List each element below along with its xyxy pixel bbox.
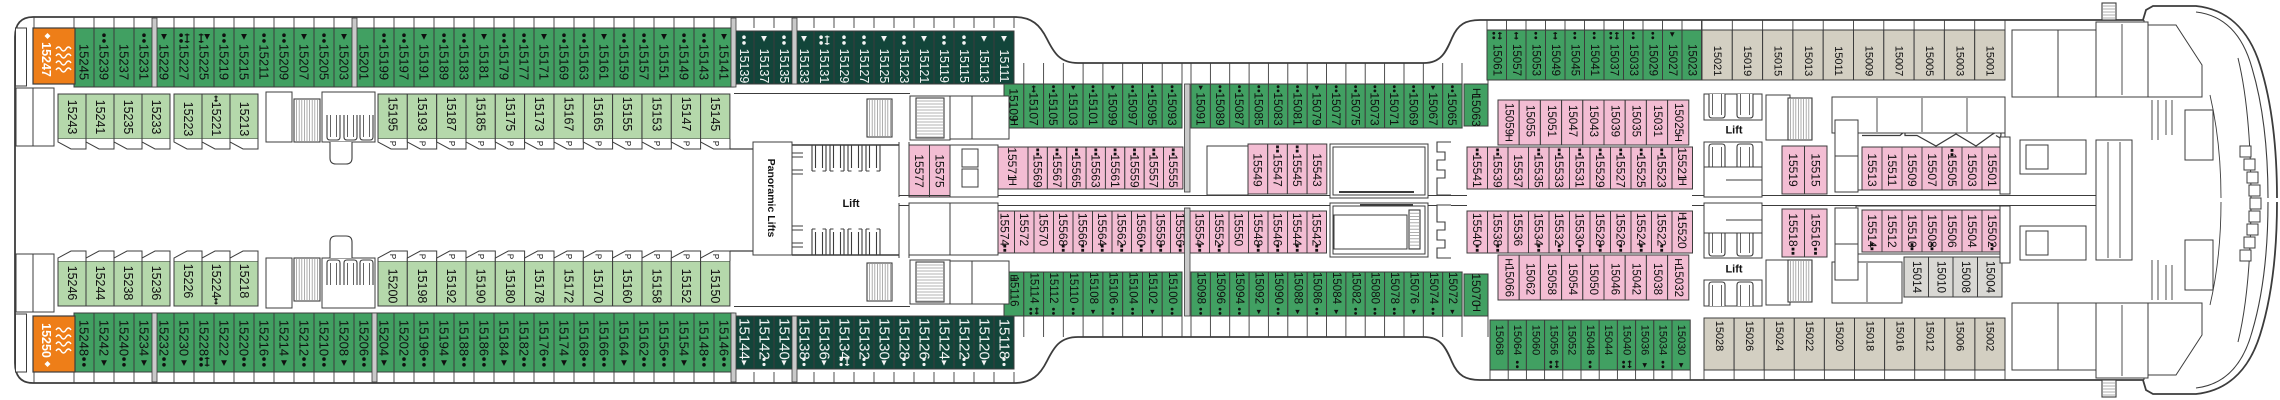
svg-text:15087: 15087 bbox=[1232, 92, 1246, 126]
svg-text:15197: 15197 bbox=[396, 44, 411, 80]
svg-text:15512: 15512 bbox=[1885, 214, 1899, 248]
svg-text:15502: 15502 bbox=[1985, 214, 1999, 248]
svg-text:15036: 15036 bbox=[1639, 325, 1651, 356]
svg-text:15102: 15102 bbox=[1146, 272, 1158, 304]
svg-text:15171: 15171 bbox=[536, 44, 551, 80]
svg-text:15507: 15507 bbox=[1925, 153, 1939, 187]
svg-text:15067: 15067 bbox=[1426, 92, 1440, 126]
svg-text:15047: 15047 bbox=[1566, 105, 1578, 137]
svg-text:15228: 15228 bbox=[196, 320, 211, 356]
svg-text:15135: 15135 bbox=[777, 49, 791, 84]
svg-text:15546: 15546 bbox=[1271, 213, 1285, 247]
svg-text:15111: 15111 bbox=[997, 50, 1011, 83]
svg-text:15094: 15094 bbox=[1233, 272, 1245, 305]
svg-text:15093: 15093 bbox=[1165, 92, 1179, 126]
svg-text:15088: 15088 bbox=[1291, 272, 1303, 304]
svg-text:15572: 15572 bbox=[1017, 213, 1031, 247]
svg-text:15084: 15084 bbox=[1330, 272, 1342, 305]
svg-text:15223: 15223 bbox=[181, 102, 195, 137]
svg-text:15201: 15201 bbox=[356, 44, 371, 80]
svg-text:15163: 15163 bbox=[576, 44, 591, 80]
svg-text:Panoramic Lifts: Panoramic Lifts bbox=[765, 159, 777, 238]
svg-text:15115: 15115 bbox=[957, 49, 971, 83]
svg-text:15009: 15009 bbox=[1862, 46, 1874, 77]
svg-text:15192: 15192 bbox=[444, 269, 458, 304]
svg-text:15245: 15245 bbox=[76, 44, 91, 80]
svg-text:15193: 15193 bbox=[415, 97, 429, 132]
svg-text:15104: 15104 bbox=[1126, 272, 1138, 305]
svg-text:15003: 15003 bbox=[1953, 46, 1965, 77]
svg-text:15505: 15505 bbox=[1945, 153, 1959, 187]
svg-text:15194: 15194 bbox=[436, 320, 451, 356]
svg-text:15059: 15059 bbox=[1502, 103, 1514, 135]
svg-text:15175: 15175 bbox=[503, 97, 517, 132]
svg-text:15105: 15105 bbox=[1046, 92, 1060, 126]
svg-text:15514: 15514 bbox=[1865, 214, 1879, 248]
svg-text:15524: 15524 bbox=[1634, 213, 1648, 247]
svg-text:H: H bbox=[1502, 258, 1514, 266]
svg-text:15008: 15008 bbox=[1959, 261, 1971, 293]
svg-text:15096: 15096 bbox=[1214, 272, 1226, 304]
svg-text:15240: 15240 bbox=[116, 320, 131, 356]
svg-text:15134: 15134 bbox=[835, 318, 852, 360]
svg-text:15563: 15563 bbox=[1089, 154, 1103, 188]
svg-text:15180: 15180 bbox=[503, 269, 517, 304]
svg-text:15153: 15153 bbox=[649, 97, 663, 132]
svg-text:P: P bbox=[594, 141, 603, 146]
svg-text:15075: 15075 bbox=[1348, 92, 1362, 126]
svg-text:15545: 15545 bbox=[1290, 153, 1304, 187]
svg-text:15034: 15034 bbox=[1657, 325, 1669, 356]
svg-text:15558: 15558 bbox=[1154, 213, 1168, 247]
svg-text:15566: 15566 bbox=[1076, 213, 1090, 247]
svg-text:15552: 15552 bbox=[1212, 213, 1226, 247]
svg-text:15124: 15124 bbox=[935, 318, 952, 360]
svg-text:15053: 15053 bbox=[1530, 44, 1542, 76]
svg-text:15085: 15085 bbox=[1252, 92, 1266, 126]
svg-text:P: P bbox=[652, 141, 661, 146]
svg-text:15073: 15073 bbox=[1368, 92, 1382, 126]
svg-text:15022: 15022 bbox=[1803, 321, 1815, 352]
svg-text:15542: 15542 bbox=[1310, 213, 1324, 247]
svg-text:15531: 15531 bbox=[1573, 154, 1587, 188]
svg-text:15129: 15129 bbox=[837, 49, 851, 84]
svg-text:15024: 15024 bbox=[1773, 321, 1785, 352]
svg-text:15206: 15206 bbox=[356, 320, 371, 356]
svg-text:15001: 15001 bbox=[1984, 46, 1996, 77]
svg-text:15188: 15188 bbox=[456, 320, 471, 356]
svg-text:15150: 15150 bbox=[708, 269, 722, 304]
svg-text:15049: 15049 bbox=[1549, 44, 1561, 76]
svg-text:15219: 15219 bbox=[216, 44, 231, 80]
svg-text:15567: 15567 bbox=[1050, 154, 1064, 188]
svg-text:Lift: Lift bbox=[1725, 264, 1742, 276]
svg-text:15016: 15016 bbox=[1893, 321, 1905, 352]
svg-text:15100: 15100 bbox=[1166, 272, 1178, 304]
svg-text:15165: 15165 bbox=[591, 97, 605, 132]
svg-text:15141: 15141 bbox=[716, 44, 731, 80]
svg-text:15050: 15050 bbox=[1587, 263, 1599, 295]
svg-text:15012: 15012 bbox=[1924, 321, 1936, 352]
svg-text:P: P bbox=[506, 254, 515, 259]
svg-text:15031: 15031 bbox=[1651, 105, 1663, 137]
svg-text:15097: 15097 bbox=[1125, 92, 1139, 126]
svg-text:P: P bbox=[388, 254, 397, 259]
svg-text:15120: 15120 bbox=[975, 318, 992, 360]
svg-text:15510: 15510 bbox=[1905, 214, 1919, 248]
svg-text:15234: 15234 bbox=[136, 320, 151, 356]
svg-text:15132: 15132 bbox=[855, 318, 872, 360]
svg-text:15018: 15018 bbox=[1863, 321, 1875, 352]
svg-text:15169: 15169 bbox=[556, 44, 571, 80]
svg-text:15231: 15231 bbox=[136, 44, 151, 80]
svg-text:15167: 15167 bbox=[561, 97, 575, 132]
svg-text:P: P bbox=[564, 254, 573, 259]
svg-text:15044: 15044 bbox=[1602, 325, 1614, 356]
svg-text:15196: 15196 bbox=[416, 320, 431, 356]
svg-text:15516: 15516 bbox=[1809, 213, 1823, 247]
svg-text:15209: 15209 bbox=[276, 44, 291, 80]
svg-text:15564: 15564 bbox=[1095, 213, 1109, 247]
svg-text:P: P bbox=[535, 254, 544, 259]
svg-text:15157: 15157 bbox=[636, 44, 651, 80]
svg-text:15086: 15086 bbox=[1311, 272, 1323, 304]
svg-text:15168: 15168 bbox=[576, 320, 591, 356]
svg-text:15160: 15160 bbox=[620, 269, 634, 304]
svg-text:15051: 15051 bbox=[1545, 105, 1557, 137]
svg-text:15521: 15521 bbox=[1675, 147, 1689, 181]
svg-text:15006: 15006 bbox=[1954, 321, 1966, 352]
svg-text:P: P bbox=[594, 254, 603, 259]
svg-text:15181: 15181 bbox=[476, 44, 491, 80]
svg-text:15569: 15569 bbox=[1031, 154, 1045, 188]
svg-text:15250: 15250 bbox=[39, 323, 53, 358]
svg-text:15063: 15063 bbox=[1469, 93, 1483, 127]
svg-text:H: H bbox=[1676, 178, 1688, 186]
svg-text:15191: 15191 bbox=[416, 44, 431, 80]
svg-text:15098: 15098 bbox=[1195, 272, 1207, 304]
svg-text:15131: 15131 bbox=[817, 49, 831, 84]
svg-text:15186: 15186 bbox=[476, 320, 491, 356]
svg-text:15060: 15060 bbox=[1529, 325, 1541, 356]
svg-text:15027: 15027 bbox=[1666, 44, 1678, 76]
svg-text:15152: 15152 bbox=[679, 269, 693, 304]
svg-text:15112: 15112 bbox=[1047, 272, 1059, 303]
svg-text:15540: 15540 bbox=[1470, 213, 1484, 247]
svg-text:15035: 15035 bbox=[1630, 105, 1642, 137]
svg-text:15547: 15547 bbox=[1270, 153, 1284, 187]
svg-text:15144: 15144 bbox=[735, 318, 752, 360]
svg-text:15113: 15113 bbox=[977, 49, 991, 83]
svg-text:15549: 15549 bbox=[1251, 153, 1265, 187]
svg-text:15154: 15154 bbox=[676, 320, 691, 356]
svg-text:Lift: Lift bbox=[842, 198, 859, 210]
svg-text:15162: 15162 bbox=[636, 320, 651, 356]
svg-text:15138: 15138 bbox=[795, 318, 812, 360]
svg-text:15159: 15159 bbox=[616, 44, 631, 80]
svg-text:15119: 15119 bbox=[937, 49, 951, 83]
svg-text:15114: 15114 bbox=[1028, 272, 1040, 304]
svg-text:15020: 15020 bbox=[1833, 321, 1845, 352]
svg-text:15173: 15173 bbox=[532, 97, 546, 132]
svg-text:15232: 15232 bbox=[156, 320, 171, 356]
svg-text:15069: 15069 bbox=[1406, 92, 1420, 126]
svg-text:15064: 15064 bbox=[1511, 325, 1523, 356]
svg-text:15106: 15106 bbox=[1107, 272, 1119, 304]
svg-text:15216: 15216 bbox=[256, 320, 271, 356]
svg-text:15523: 15523 bbox=[1655, 154, 1669, 188]
svg-text:15151: 15151 bbox=[656, 44, 671, 80]
svg-text:15548: 15548 bbox=[1251, 213, 1265, 247]
svg-text:15236: 15236 bbox=[149, 266, 163, 301]
svg-text:P: P bbox=[682, 254, 691, 259]
svg-text:15128: 15128 bbox=[895, 318, 912, 360]
svg-text:15550: 15550 bbox=[1232, 213, 1246, 247]
svg-text:15233: 15233 bbox=[149, 100, 163, 135]
svg-text:15519: 15519 bbox=[1786, 153, 1800, 187]
svg-text:15247: 15247 bbox=[39, 42, 53, 77]
svg-text:P: P bbox=[535, 141, 544, 146]
svg-text:15501: 15501 bbox=[1985, 153, 1999, 187]
svg-text:P: P bbox=[447, 254, 456, 259]
svg-text:15146: 15146 bbox=[716, 320, 731, 356]
svg-text:15241: 15241 bbox=[93, 100, 107, 135]
svg-text:15530: 15530 bbox=[1573, 213, 1587, 247]
svg-text:15014: 15014 bbox=[1910, 261, 1922, 294]
svg-text:15513: 15513 bbox=[1865, 153, 1879, 187]
svg-text:15045: 15045 bbox=[1569, 44, 1581, 76]
svg-text:15520: 15520 bbox=[1675, 215, 1689, 249]
svg-text:P: P bbox=[623, 141, 632, 146]
svg-text:15149: 15149 bbox=[676, 44, 691, 80]
svg-text:15137: 15137 bbox=[757, 49, 771, 84]
svg-text:15155: 15155 bbox=[620, 97, 634, 132]
svg-text:15123: 15123 bbox=[897, 49, 911, 84]
svg-text:P: P bbox=[711, 141, 720, 146]
svg-text:15204: 15204 bbox=[376, 320, 391, 356]
svg-text:15130: 15130 bbox=[875, 318, 892, 360]
svg-text:15039: 15039 bbox=[1608, 105, 1620, 137]
svg-text:15015: 15015 bbox=[1772, 46, 1784, 77]
svg-text:P: P bbox=[388, 141, 397, 146]
svg-text:15089: 15089 bbox=[1213, 92, 1227, 126]
svg-text:15235: 15235 bbox=[121, 100, 135, 135]
svg-text:15043: 15043 bbox=[1587, 105, 1599, 137]
svg-text:15081: 15081 bbox=[1290, 92, 1304, 126]
svg-text:15056: 15056 bbox=[1548, 325, 1560, 356]
svg-text:15543: 15543 bbox=[1310, 153, 1324, 187]
svg-text:15189: 15189 bbox=[436, 44, 451, 80]
svg-text:15183: 15183 bbox=[456, 44, 471, 80]
svg-text:15200: 15200 bbox=[386, 269, 400, 304]
svg-text:15142: 15142 bbox=[755, 318, 772, 360]
svg-text:H: H bbox=[1470, 304, 1482, 312]
svg-text:15536: 15536 bbox=[1511, 213, 1525, 247]
svg-text:15140: 15140 bbox=[775, 318, 792, 360]
svg-text:15077: 15077 bbox=[1329, 92, 1343, 126]
svg-text:15019: 15019 bbox=[1741, 46, 1753, 77]
svg-text:15166: 15166 bbox=[596, 320, 611, 356]
svg-text:15571: 15571 bbox=[1005, 147, 1019, 181]
svg-text:15029: 15029 bbox=[1647, 44, 1659, 76]
svg-text:15028: 15028 bbox=[1713, 321, 1725, 352]
svg-text:15127: 15127 bbox=[857, 49, 871, 84]
svg-text:15143: 15143 bbox=[696, 44, 711, 80]
svg-text:P: P bbox=[682, 141, 691, 146]
svg-text:15218: 15218 bbox=[237, 264, 251, 299]
svg-text:15225: 15225 bbox=[196, 44, 211, 80]
svg-text:P: P bbox=[652, 254, 661, 259]
svg-text:15238: 15238 bbox=[121, 266, 135, 301]
svg-text:15013: 15013 bbox=[1802, 46, 1814, 77]
svg-text:15068: 15068 bbox=[1493, 325, 1505, 356]
svg-text:15242: 15242 bbox=[96, 320, 111, 356]
svg-text:15048: 15048 bbox=[1584, 325, 1596, 356]
svg-text:15529: 15529 bbox=[1593, 154, 1607, 188]
svg-text:15539: 15539 bbox=[1491, 154, 1505, 188]
svg-text:15544: 15544 bbox=[1290, 213, 1304, 247]
svg-text:15110: 15110 bbox=[1067, 272, 1079, 303]
svg-text:15515: 15515 bbox=[1809, 153, 1823, 187]
svg-text:15101: 15101 bbox=[1086, 92, 1100, 126]
svg-text:15074: 15074 bbox=[1427, 272, 1439, 305]
svg-text:15179: 15179 bbox=[496, 44, 511, 80]
svg-text:15125: 15125 bbox=[877, 49, 891, 84]
svg-text:15198: 15198 bbox=[415, 269, 429, 304]
svg-text:15037: 15037 bbox=[1608, 44, 1620, 76]
svg-text:15062: 15062 bbox=[1524, 263, 1536, 295]
svg-text:15202: 15202 bbox=[396, 320, 411, 356]
svg-text:15522: 15522 bbox=[1655, 213, 1669, 247]
svg-text:15030: 15030 bbox=[1675, 325, 1687, 356]
svg-text:15099: 15099 bbox=[1106, 92, 1120, 126]
svg-text:15021: 15021 bbox=[1711, 46, 1723, 77]
svg-text:15147: 15147 bbox=[679, 97, 693, 132]
svg-text:15527: 15527 bbox=[1614, 154, 1628, 188]
svg-text:15103: 15103 bbox=[1066, 92, 1080, 126]
svg-text:H: H bbox=[1502, 134, 1514, 142]
svg-text:15058: 15058 bbox=[1545, 263, 1557, 295]
svg-text:15224: 15224 bbox=[209, 264, 223, 299]
svg-text:15065: 15065 bbox=[1445, 92, 1459, 126]
svg-text:H: H bbox=[1676, 212, 1688, 220]
svg-text:15011: 15011 bbox=[1832, 46, 1844, 76]
svg-text:15182: 15182 bbox=[516, 320, 531, 356]
svg-text:15213: 15213 bbox=[237, 102, 251, 137]
svg-text:15504: 15504 bbox=[1965, 214, 1979, 248]
svg-text:15559: 15559 bbox=[1127, 154, 1141, 188]
svg-text:15248: 15248 bbox=[76, 320, 91, 356]
svg-text:H: H bbox=[1470, 88, 1482, 96]
svg-text:15195: 15195 bbox=[386, 97, 400, 132]
svg-text:15023: 15023 bbox=[1686, 44, 1698, 76]
svg-text:15554: 15554 bbox=[1193, 213, 1207, 247]
svg-text:15033: 15033 bbox=[1627, 44, 1639, 76]
svg-text:15090: 15090 bbox=[1272, 272, 1284, 304]
svg-text:15025: 15025 bbox=[1672, 103, 1684, 135]
svg-text:15509: 15509 bbox=[1905, 153, 1919, 187]
svg-text:15184: 15184 bbox=[496, 320, 511, 356]
svg-text:15212: 15212 bbox=[296, 320, 311, 356]
svg-text:15177: 15177 bbox=[516, 44, 531, 80]
svg-text:15072: 15072 bbox=[1446, 272, 1458, 304]
svg-text:15118: 15118 bbox=[995, 319, 1012, 360]
svg-text:15176: 15176 bbox=[536, 320, 551, 356]
svg-text:15577: 15577 bbox=[912, 154, 926, 188]
svg-text:Lift: Lift bbox=[1725, 125, 1742, 137]
svg-text:15211: 15211 bbox=[256, 44, 271, 79]
svg-text:15040: 15040 bbox=[1620, 325, 1632, 356]
svg-text:15095: 15095 bbox=[1145, 92, 1159, 126]
svg-text:P: P bbox=[418, 254, 427, 259]
svg-text:15055: 15055 bbox=[1524, 105, 1536, 137]
svg-text:15187: 15187 bbox=[444, 97, 458, 132]
svg-text:15227: 15227 bbox=[176, 44, 191, 80]
svg-text:15203: 15203 bbox=[336, 44, 351, 80]
svg-text:15066: 15066 bbox=[1502, 265, 1514, 297]
svg-text:15190: 15190 bbox=[474, 269, 488, 304]
svg-text:15005: 15005 bbox=[1923, 46, 1935, 77]
svg-text:15071: 15071 bbox=[1387, 92, 1401, 126]
svg-text:15526: 15526 bbox=[1614, 213, 1628, 247]
svg-text:15178: 15178 bbox=[532, 269, 546, 304]
svg-text:15158: 15158 bbox=[649, 269, 663, 304]
svg-text:15568: 15568 bbox=[1056, 213, 1070, 247]
svg-text:15220: 15220 bbox=[236, 320, 251, 356]
svg-text:15518: 15518 bbox=[1786, 213, 1800, 247]
svg-text:15164: 15164 bbox=[616, 320, 631, 356]
svg-text:15246: 15246 bbox=[65, 266, 79, 301]
svg-text:15244: 15244 bbox=[93, 266, 107, 301]
svg-text:15570: 15570 bbox=[1037, 213, 1051, 247]
svg-text:15026: 15026 bbox=[1743, 321, 1755, 352]
svg-text:15199: 15199 bbox=[376, 44, 391, 80]
svg-text:15230: 15230 bbox=[176, 320, 191, 356]
svg-text:15525: 15525 bbox=[1634, 154, 1648, 188]
svg-text:P: P bbox=[447, 141, 456, 146]
svg-text:15010: 15010 bbox=[1935, 261, 1947, 293]
svg-text:15076: 15076 bbox=[1407, 272, 1419, 304]
svg-text:15002: 15002 bbox=[1984, 321, 1996, 352]
svg-text:15574: 15574 bbox=[998, 213, 1012, 247]
svg-text:15041: 15041 bbox=[1588, 44, 1600, 76]
svg-text:15139: 15139 bbox=[737, 49, 751, 84]
svg-text:15038: 15038 bbox=[1651, 263, 1663, 295]
svg-text:15107: 15107 bbox=[1027, 92, 1041, 126]
svg-text:15161: 15161 bbox=[596, 44, 611, 80]
svg-text:15136: 15136 bbox=[815, 318, 832, 360]
svg-text:P: P bbox=[506, 141, 515, 146]
svg-text:P: P bbox=[418, 141, 427, 146]
svg-text:15126: 15126 bbox=[915, 318, 932, 360]
svg-text:15210: 15210 bbox=[316, 320, 331, 356]
svg-text:15032: 15032 bbox=[1672, 265, 1684, 297]
svg-text:15237: 15237 bbox=[116, 44, 131, 80]
svg-text:15174: 15174 bbox=[556, 320, 571, 356]
svg-text:15042: 15042 bbox=[1630, 263, 1642, 295]
svg-text:15046: 15046 bbox=[1608, 263, 1620, 295]
svg-text:P: P bbox=[623, 254, 632, 259]
svg-text:15506: 15506 bbox=[1945, 214, 1959, 248]
svg-text:15170: 15170 bbox=[591, 269, 605, 304]
svg-text:P: P bbox=[476, 254, 485, 259]
svg-text:15555: 15555 bbox=[1166, 154, 1180, 188]
svg-text:15091: 15091 bbox=[1194, 92, 1208, 126]
svg-text:15070: 15070 bbox=[1469, 273, 1483, 307]
svg-text:15121: 15121 bbox=[917, 49, 931, 84]
svg-text:15080: 15080 bbox=[1369, 272, 1381, 304]
svg-text:15007: 15007 bbox=[1893, 46, 1905, 77]
